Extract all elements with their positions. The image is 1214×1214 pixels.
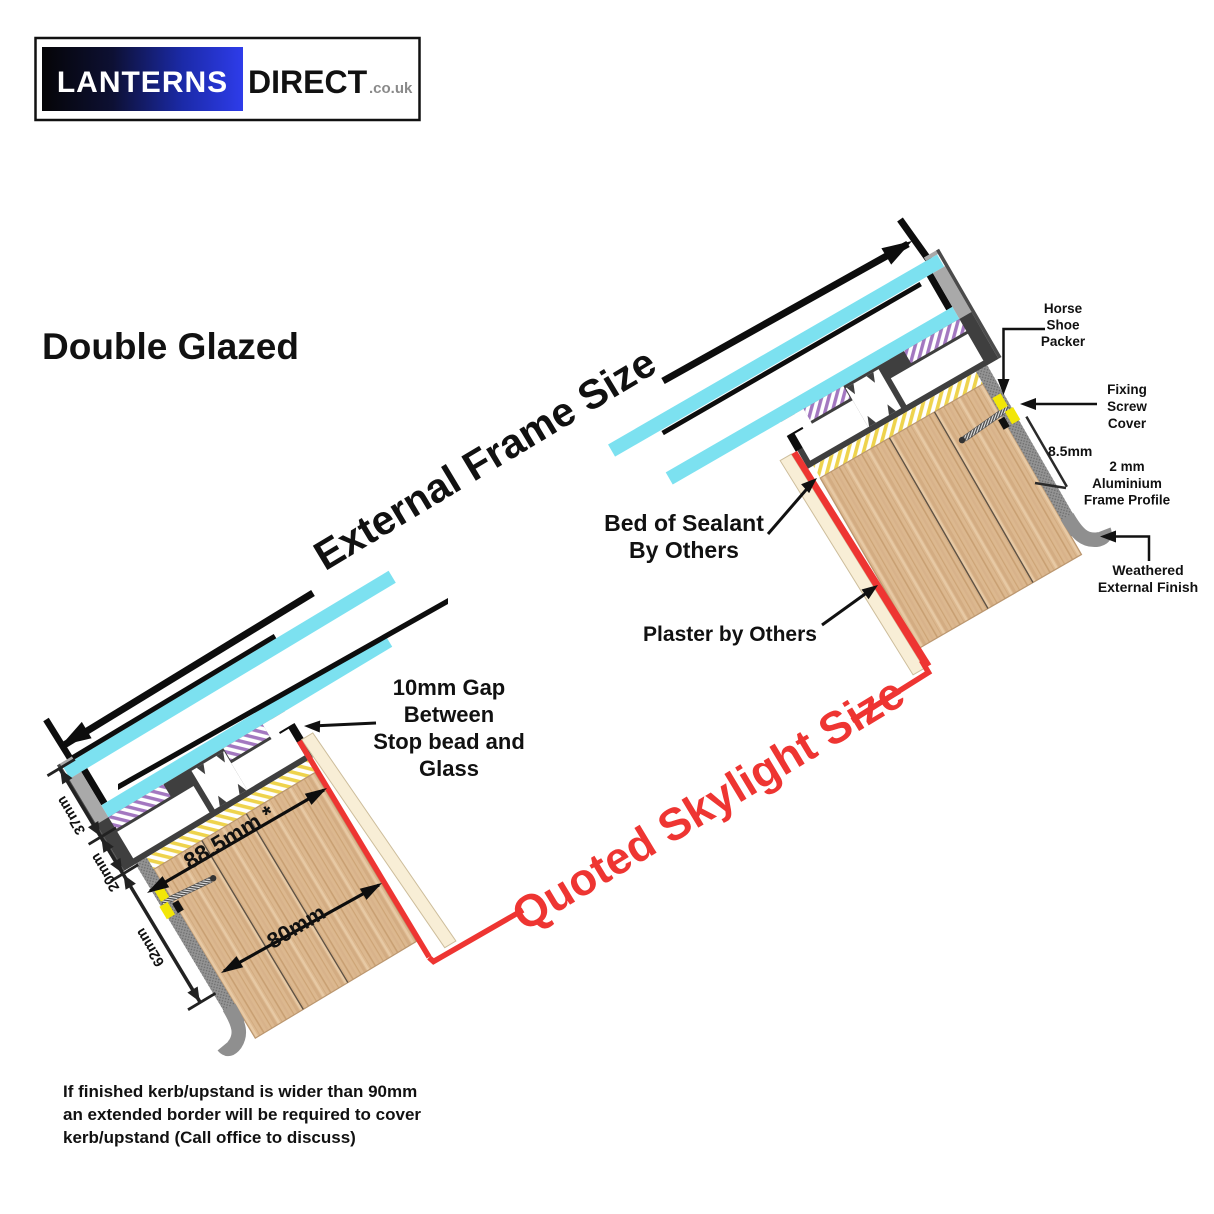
svg-text:Cover: Cover	[1108, 416, 1147, 431]
svg-text:8.5mm: 8.5mm	[1048, 443, 1092, 459]
svg-text:.co.uk: .co.uk	[369, 80, 413, 97]
svg-text:Screw: Screw	[1107, 399, 1147, 414]
svg-text:Between: Between	[404, 702, 494, 727]
svg-text:kerb/upstand (Call office to d: kerb/upstand (Call office to discuss)	[63, 1128, 356, 1147]
svg-text:Stop bead and: Stop bead and	[373, 729, 525, 754]
svg-text:Bed of Sealant: Bed of Sealant	[604, 510, 764, 536]
svg-text:Double Glazed: Double Glazed	[42, 326, 299, 367]
svg-text:If finished kerb/upstand is wi: If finished kerb/upstand is wider than 9…	[63, 1082, 417, 1101]
svg-text:Glass: Glass	[419, 756, 479, 781]
svg-text:an extended border will be req: an extended border will be required to c…	[63, 1105, 421, 1124]
svg-text:Aluminium: Aluminium	[1092, 476, 1162, 491]
svg-text:Weathered: Weathered	[1112, 562, 1183, 578]
svg-text:Horse: Horse	[1044, 301, 1083, 316]
svg-text:10mm Gap: 10mm Gap	[393, 675, 506, 700]
svg-text:Frame Profile: Frame Profile	[1084, 493, 1171, 508]
svg-text:Fixing: Fixing	[1107, 382, 1147, 397]
svg-text:LANTERNS: LANTERNS	[57, 66, 228, 99]
svg-text:External Finish: External Finish	[1098, 579, 1198, 595]
svg-text:Plaster by Others: Plaster by Others	[643, 623, 817, 646]
svg-text:Packer: Packer	[1041, 334, 1086, 349]
svg-text:DIRECT: DIRECT	[248, 64, 368, 100]
svg-text:Shoe: Shoe	[1046, 318, 1079, 333]
svg-text:2 mm: 2 mm	[1109, 459, 1144, 474]
svg-text:By Others: By Others	[629, 537, 739, 563]
